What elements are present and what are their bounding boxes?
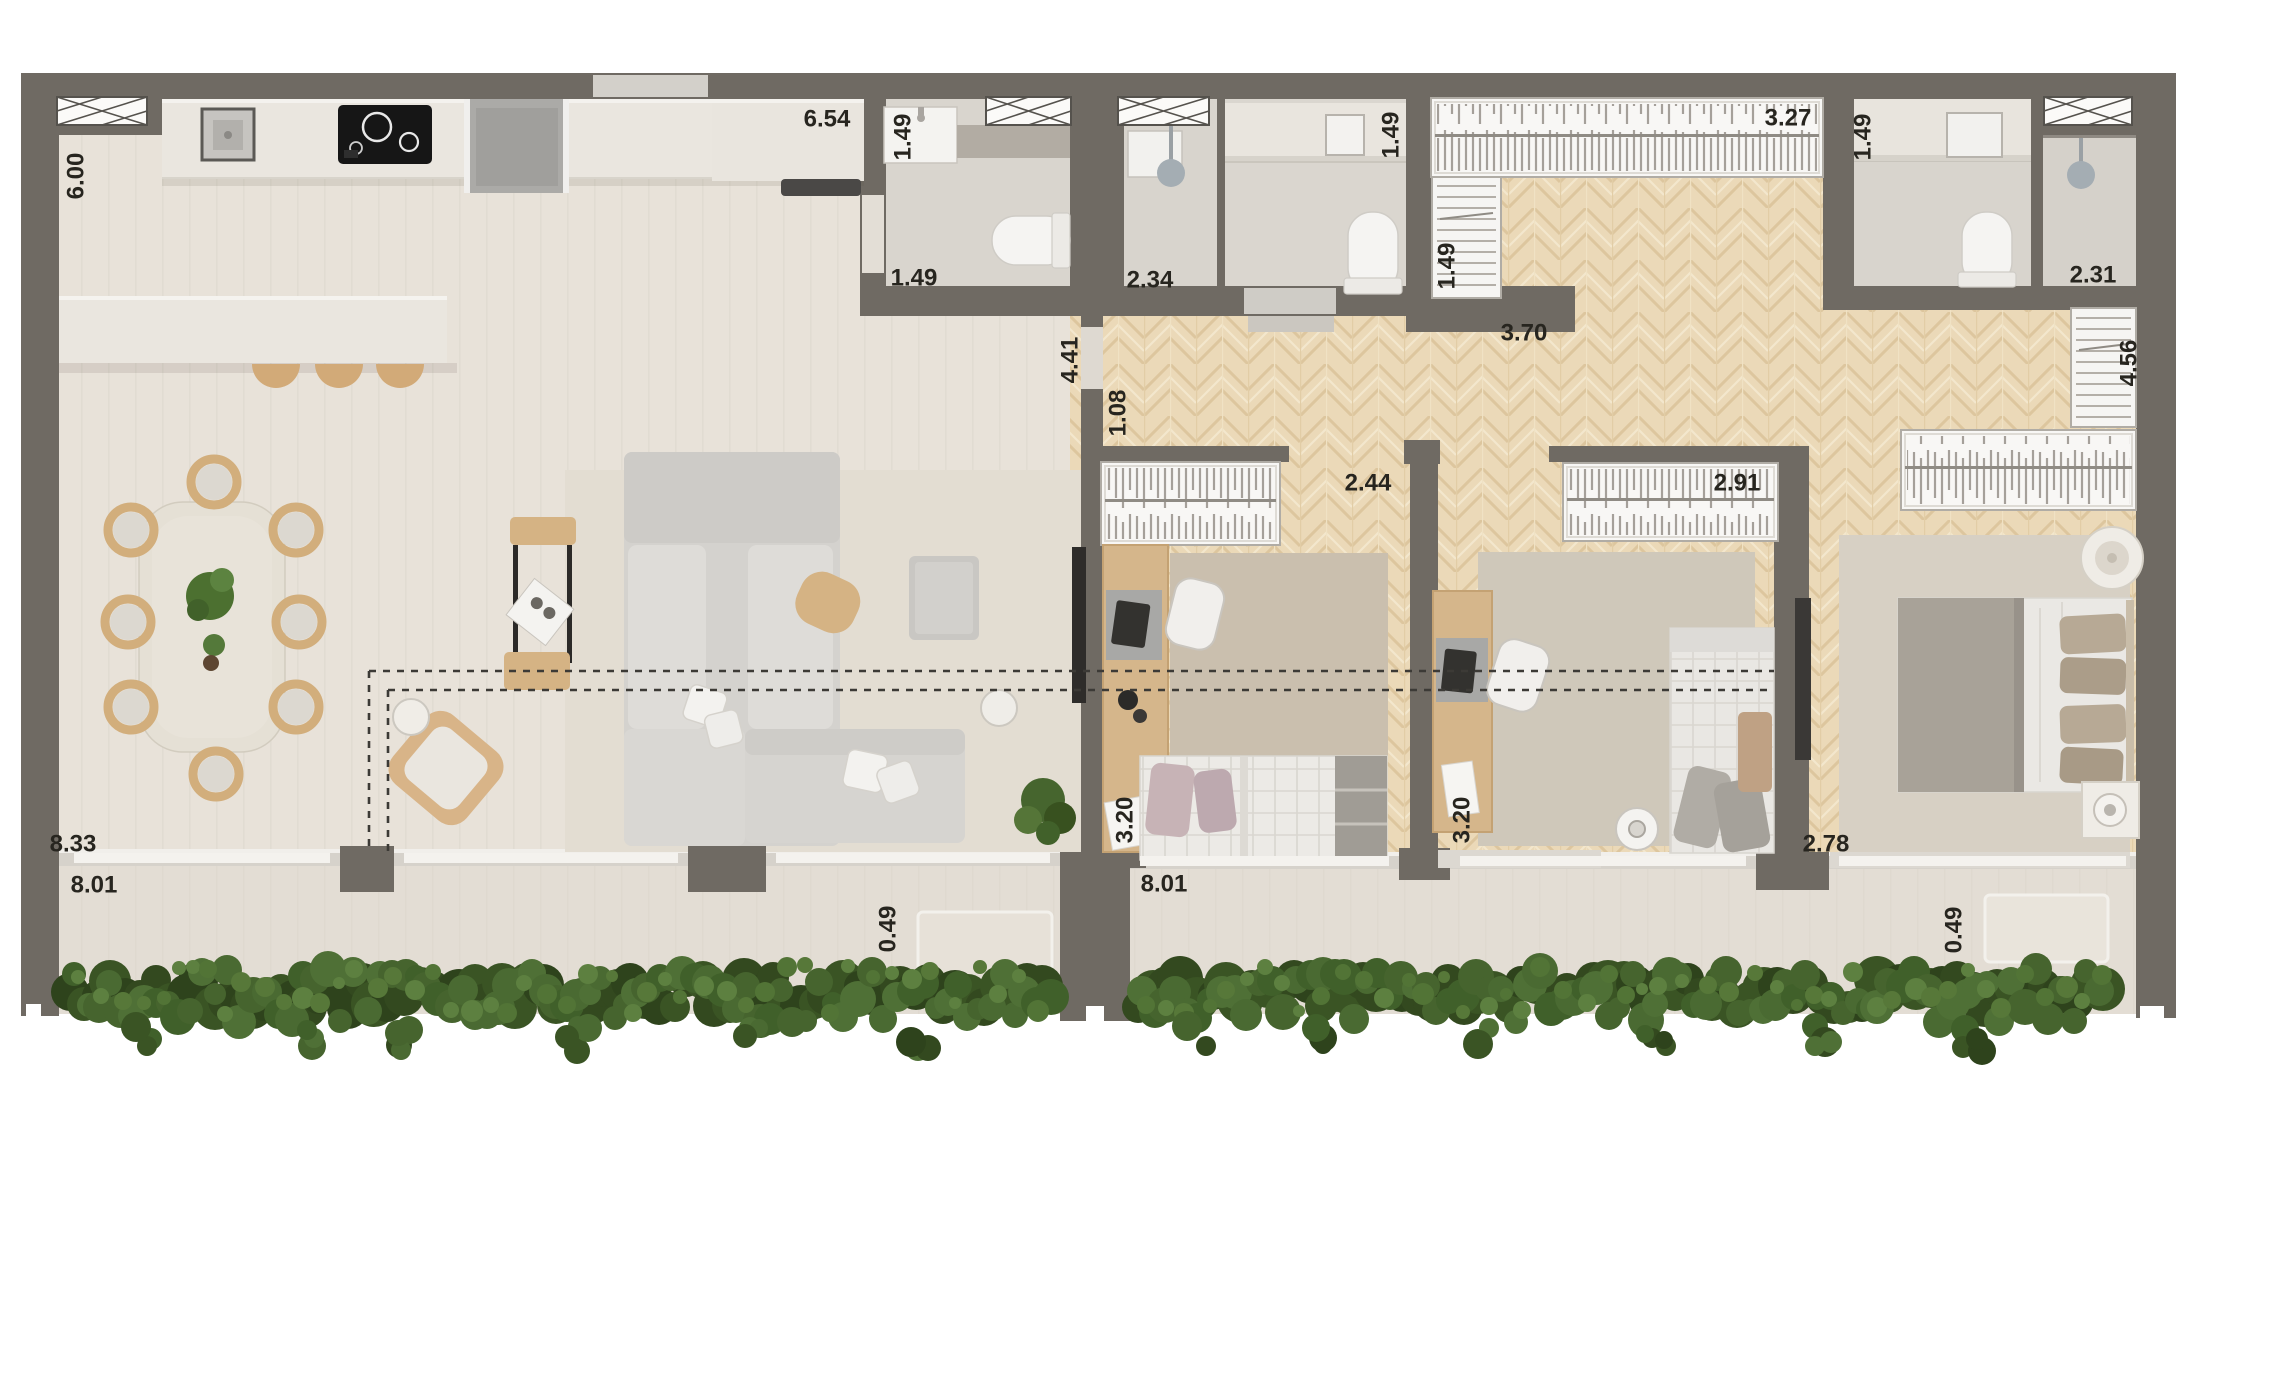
- svg-text:2.91: 2.91: [1714, 469, 1761, 496]
- svg-text:8.33: 8.33: [50, 830, 97, 857]
- svg-text:2.78: 2.78: [1803, 830, 1850, 857]
- svg-text:3.20: 3.20: [1448, 797, 1475, 844]
- svg-text:3.27: 3.27: [1765, 104, 1812, 131]
- svg-text:1.49: 1.49: [1433, 243, 1460, 290]
- svg-text:4.56: 4.56: [2115, 340, 2142, 387]
- svg-text:6.00: 6.00: [62, 153, 89, 200]
- svg-text:8.01: 8.01: [1141, 870, 1188, 897]
- svg-text:2.34: 2.34: [1127, 266, 1174, 293]
- svg-text:2.44: 2.44: [1345, 469, 1392, 496]
- svg-text:0.49: 0.49: [1940, 907, 1967, 954]
- svg-text:3.20: 3.20: [1111, 797, 1138, 844]
- svg-text:1.49: 1.49: [891, 264, 938, 291]
- svg-text:4.41: 4.41: [1056, 337, 1083, 384]
- svg-text:1.49: 1.49: [889, 114, 916, 161]
- svg-text:8.01: 8.01: [71, 871, 118, 898]
- svg-text:2.31: 2.31: [2070, 261, 2117, 288]
- svg-text:0.49: 0.49: [874, 906, 901, 953]
- svg-text:1.49: 1.49: [1849, 114, 1876, 161]
- svg-text:6.54: 6.54: [804, 105, 851, 132]
- svg-text:3.70: 3.70: [1501, 319, 1548, 346]
- svg-text:1.08: 1.08: [1104, 390, 1131, 437]
- svg-text:1.49: 1.49: [1377, 112, 1404, 159]
